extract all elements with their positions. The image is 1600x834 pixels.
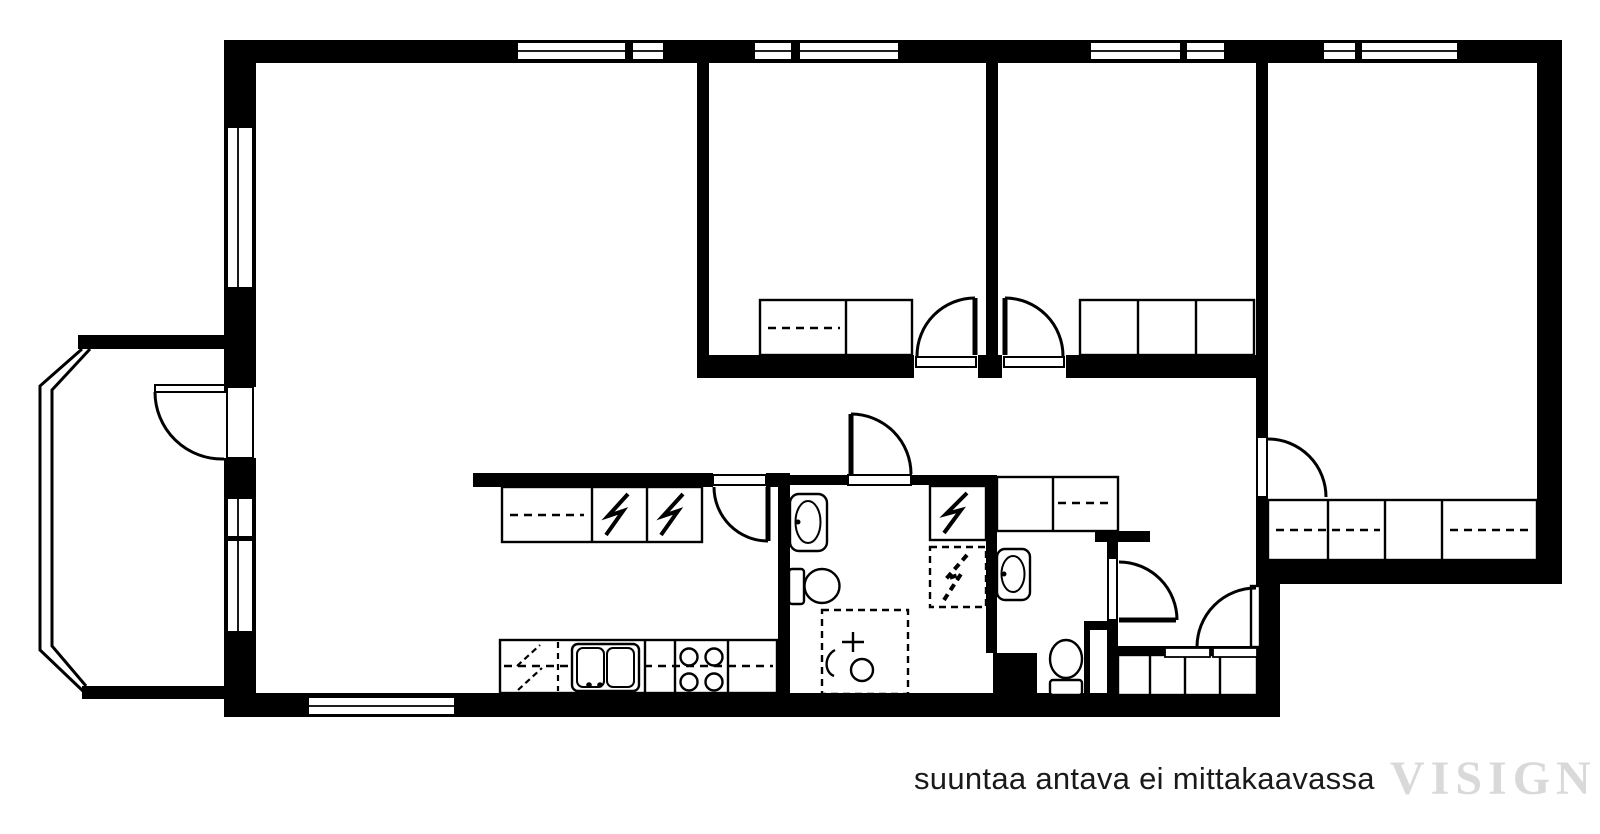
bed2-door (1004, 357, 1064, 367)
wall-bath-north-east (911, 475, 997, 485)
kitchen-sink-tap (586, 682, 592, 688)
kitchen-sink-basin-left (577, 648, 604, 687)
wall-wc-nook-east (1084, 621, 1090, 693)
bed2-wardrobe (1080, 300, 1254, 355)
entry-door-leaf (1251, 586, 1260, 647)
wall-wc-step (993, 653, 1037, 693)
exterior-walls (78, 40, 1562, 717)
wc-toilet-tank (1050, 680, 1082, 695)
wc-toilet-bowl (1050, 640, 1082, 678)
shower-mixer-pipe (827, 650, 835, 676)
floorplan-drawing (0, 0, 1600, 834)
vestibule-wardrobe (1118, 655, 1257, 695)
bathroom-toilet-bowl (805, 569, 840, 603)
entry-door-swing (1197, 588, 1256, 647)
bed3-door-swing (1268, 439, 1326, 497)
wall-kitchen-north (473, 473, 713, 487)
stove-burner (706, 674, 723, 691)
bed2-door-swing (1005, 298, 1063, 356)
wall-bath-wc (986, 485, 997, 653)
wall-right (1537, 40, 1562, 584)
wall-bed2-bed3-upper (1256, 63, 1268, 437)
wall-bedrooms-south (697, 355, 1268, 378)
wall-bath-north-west (790, 475, 848, 485)
scale-note: suuntaa antava ei mittakaavassa (914, 761, 1375, 797)
wall-bay-bottom (82, 686, 225, 699)
wc-door (1108, 558, 1117, 620)
wall-bed3-bottom (1256, 560, 1562, 584)
balcony-outer-wall (40, 349, 84, 692)
vestibule-sill-west (1165, 648, 1210, 657)
bathroom-toilet-tank (789, 569, 804, 604)
wc-door-swing (1119, 562, 1177, 620)
stove-burner (681, 674, 698, 691)
shower-mixer-handle (851, 659, 873, 681)
wall-bed1-bed2 (986, 63, 998, 355)
stove-burner (681, 649, 698, 666)
wall-wc-nook-top (1084, 621, 1112, 630)
wall-bay-top (78, 335, 224, 349)
balcony-glazing (40, 349, 90, 692)
interior-walls (473, 63, 1268, 695)
balcony-door-swing (155, 392, 224, 459)
kitchen-door-swing (714, 487, 768, 541)
visign-watermark: VISIGN (1390, 751, 1597, 806)
wall-hall-stub (1095, 531, 1150, 542)
floorplan-page: suuntaa antava ei mittakaavassa VISIGN (0, 0, 1600, 834)
wall-bed2-bed3-lower (1256, 497, 1268, 584)
window-living-west-tall (227, 127, 253, 288)
window-west-lower (227, 540, 253, 632)
vestibule-sill-east (1213, 648, 1257, 657)
wall-living-bed1 (697, 63, 709, 355)
hall-cabinet (997, 477, 1118, 531)
bed1-door-swing (917, 298, 975, 356)
bed1-door (916, 357, 976, 367)
bed3-door (1257, 437, 1267, 497)
kitchen-door (713, 475, 766, 485)
bathroom-door-swing (851, 414, 911, 474)
window-west-upper (227, 498, 253, 537)
bathroom-door (848, 475, 911, 485)
appliance-reservation-icon (944, 555, 967, 600)
wc-sink-drain (1002, 572, 1007, 577)
balcony-door-leaf (155, 385, 225, 392)
bathroom-sink-drain (796, 520, 801, 525)
kitchen-sink-tap (597, 682, 603, 688)
kitchen-sink-basin-right (607, 648, 634, 687)
stove-burner (706, 649, 723, 666)
balcony-inner-wall (52, 349, 90, 686)
balcony-door (227, 387, 253, 458)
